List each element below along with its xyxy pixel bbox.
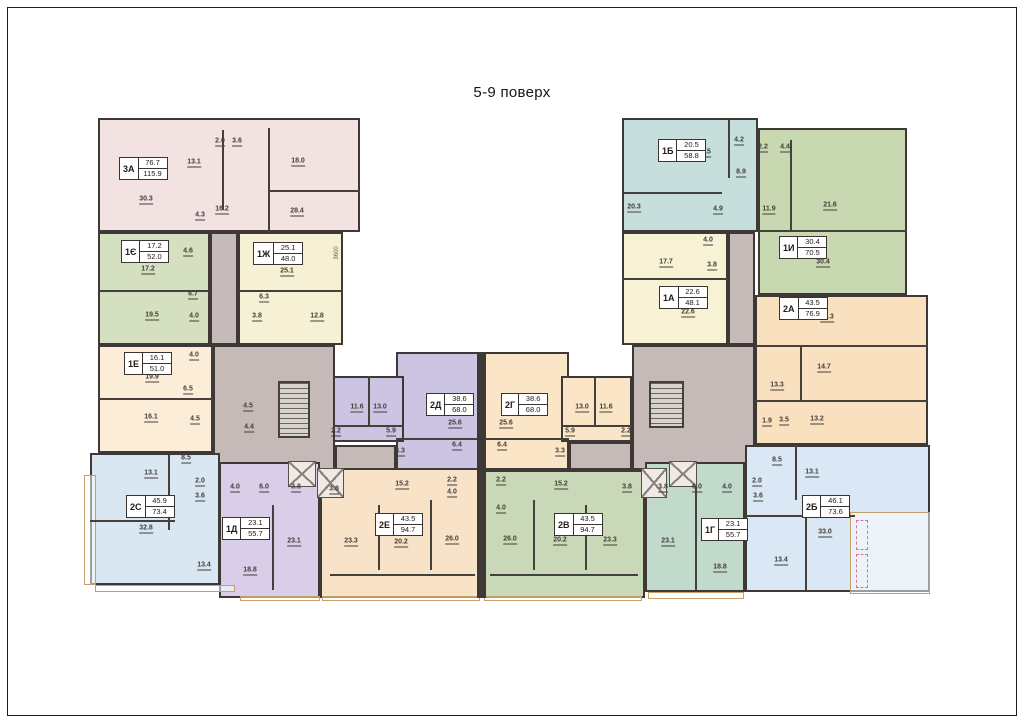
room-area-1b: 4.9: [713, 206, 723, 215]
unit-living-area: 43.5: [394, 514, 422, 525]
partition-wall: [98, 398, 213, 400]
room-area-1a: 22.6: [681, 309, 695, 318]
unit-living-area: 22.6: [679, 287, 707, 298]
unit-living-area: 43.5: [799, 298, 827, 309]
unit-code: 1Є: [122, 241, 140, 262]
unit-total-area: 55.7: [241, 529, 269, 539]
room-area-1b: 8.9: [736, 169, 746, 178]
room-area-2b: 3.6: [753, 493, 763, 502]
room-area-1d: 18.8: [243, 567, 257, 576]
unit-areas: 17.252.0: [140, 241, 168, 262]
unit-code: 1А: [660, 287, 679, 308]
unit-areas: 76.7115.9: [139, 158, 167, 179]
partition-wall: [330, 574, 475, 576]
room-area-1e: 16.1: [144, 414, 158, 423]
room-area-1ye: 4.0: [189, 313, 199, 322]
room-area-1a: 17.7: [659, 259, 673, 268]
corridor-area: [728, 232, 755, 345]
unit-label-2a: 2А43.576.9: [779, 297, 828, 320]
partition-wall: [795, 445, 797, 500]
unit-areas: 22.648.1: [679, 287, 707, 308]
staircase: [649, 381, 684, 428]
floor-plan: 5-9 поверх 4.54.43А76.7115.930.313.12.03…: [0, 0, 1024, 723]
unit-code: 1Д: [223, 518, 241, 539]
room-area-2v: 23.3: [603, 537, 617, 546]
partition-wall: [695, 480, 697, 590]
unit-label-1d: 1Д23.155.7: [222, 517, 270, 540]
room-area-2s: 3.6: [195, 493, 205, 502]
partition-wall: [168, 455, 170, 530]
partition-wall: [268, 190, 360, 192]
room-area-3a: 13.1: [187, 159, 201, 168]
unit-code: 2Г: [502, 394, 519, 415]
partition-wall: [268, 128, 270, 232]
room-area-1d: 3.8: [291, 484, 301, 493]
room-area-2g: 25.6: [499, 420, 513, 429]
partition-wall: [758, 230, 907, 232]
partition-wall: [800, 347, 802, 400]
balcony: [322, 596, 480, 601]
unit-label-2d: 2Д38.668.0: [426, 393, 474, 416]
partition-wall: [790, 140, 792, 230]
partition-wall: [755, 345, 928, 347]
unit-label-1g: 1Г23.155.7: [701, 518, 748, 541]
partition-wall: [396, 438, 482, 440]
room-area-1g: 6.0: [692, 484, 702, 493]
unit-living-area: 76.7: [139, 158, 167, 169]
unit-living-area: 38.6: [519, 394, 547, 405]
unit-living-area: 46.1: [821, 496, 849, 507]
unit-areas: 23.155.7: [719, 519, 747, 540]
unit-total-area: 76.9: [799, 309, 827, 319]
unit-label-1b: 1Б20.558.8: [658, 139, 706, 162]
room-area-1a: 4.0: [703, 237, 713, 246]
partition-wall: [238, 290, 343, 292]
corridor-room-area: 4.4: [244, 424, 254, 433]
unit-areas: 38.668.0: [445, 394, 473, 415]
room-area-3a: 28.4: [290, 208, 304, 217]
partition-wall: [90, 520, 175, 522]
unit-code: 2С: [127, 496, 146, 517]
room-area-2g: 3.3: [555, 448, 565, 457]
room-area-1e: 6.5: [183, 386, 193, 395]
room-area-3a: 2.0: [215, 138, 225, 147]
room-area-1g: 23.1: [661, 538, 675, 547]
expansion-joint-wall: [477, 352, 486, 598]
balcony-dashed-marking: [856, 554, 868, 588]
unit-code: 1Б: [659, 140, 677, 161]
room-area-2v: 3.8: [622, 484, 632, 493]
partition-wall: [728, 120, 730, 178]
room-area-2s: 13.1: [144, 470, 158, 479]
balcony-dashed-marking: [856, 520, 868, 550]
room-area-2b: 2.0: [752, 478, 762, 487]
room-area-1d: 6.0: [259, 484, 269, 493]
unit-label-2v: 2В43.594.7: [554, 513, 603, 536]
corridor-room-area: 4.5: [243, 403, 253, 412]
room-area-2e: 23.3: [344, 538, 358, 547]
room-area-2a: 3.5: [779, 417, 789, 426]
unit-code: 2Б: [803, 496, 821, 517]
corridor-area: [213, 345, 335, 470]
room-area-1ye: 17.2: [141, 266, 155, 275]
unit-areas: 46.173.6: [821, 496, 849, 517]
unit-code: 2В: [555, 514, 574, 535]
unit-living-area: 38.6: [445, 394, 473, 405]
corridor-area: [210, 232, 238, 345]
unit-label-1e: 1Е16.151.0: [124, 352, 172, 375]
floor-title: 5-9 поверх: [0, 84, 1024, 101]
room-area-2e: 26.0: [445, 536, 459, 545]
apartment-1i-area: [758, 128, 907, 295]
unit-total-area: 58.8: [677, 151, 705, 161]
room-area-2d: 25.6: [448, 420, 462, 429]
balcony: [648, 592, 744, 599]
room-area-3a: 18.0: [291, 158, 305, 167]
unit-label-1i: 1И30.470.5: [779, 236, 827, 259]
room-area-3a: 16.2: [215, 206, 229, 215]
corridor-area: [569, 442, 632, 470]
room-area-2a: 1.9: [762, 418, 772, 427]
room-area-2v: 26.0: [503, 536, 517, 545]
unit-areas: 43.594.7: [394, 514, 422, 535]
staircase: [278, 381, 310, 438]
unit-total-area: 48.1: [679, 298, 707, 308]
unit-total-area: 94.7: [574, 525, 602, 535]
room-area-2a: 13.2: [810, 416, 824, 425]
unit-code: 1Е: [125, 353, 143, 374]
unit-areas: 16.151.0: [143, 353, 171, 374]
balcony: [95, 585, 235, 592]
room-area-2b: 33.0: [818, 529, 832, 538]
partition-wall: [368, 376, 370, 426]
partition-wall: [483, 438, 569, 440]
room-area-2b: 13.1: [805, 469, 819, 478]
unit-label-2g: 2Г38.668.0: [501, 393, 548, 416]
unit-areas: 20.558.8: [677, 140, 705, 161]
unit-total-area: 52.0: [140, 252, 168, 262]
unit-total-area: 55.7: [719, 530, 747, 540]
unit-code: 2Д: [427, 394, 445, 415]
unit-code: 3А: [120, 158, 139, 179]
unit-total-area: 51.0: [143, 364, 171, 374]
unit-living-area: 16.1: [143, 353, 171, 364]
room-area-3a: 4.3: [195, 212, 205, 221]
room-area-1g: 4.0: [722, 484, 732, 493]
partition-wall: [533, 500, 535, 570]
room-area-1zh: 6.3: [259, 294, 269, 303]
unit-total-area: 48.0: [274, 254, 302, 264]
unit-label-1a: 1А22.648.1: [659, 286, 708, 309]
room-area-1b: 4.2: [734, 137, 744, 146]
room-area-1i: 4.4: [780, 144, 790, 153]
unit-total-area: 68.0: [445, 405, 473, 415]
unit-areas: 23.155.7: [241, 518, 269, 539]
room-area-2g: 6.4: [497, 442, 507, 451]
room-area-2g: 11.6: [599, 404, 612, 413]
room-area-2d: 6.4: [452, 442, 462, 451]
unit-code: 2А: [780, 298, 799, 319]
room-area-3a: 3.6: [232, 138, 242, 147]
unit-total-area: 73.4: [146, 507, 174, 517]
room-area-2s: 8.5: [181, 455, 191, 464]
partition-wall: [490, 574, 638, 576]
partition-wall: [624, 192, 722, 194]
unit-living-area: 45.9: [146, 496, 174, 507]
balcony: [240, 596, 320, 601]
unit-label-2e: 2Е43.594.7: [375, 513, 423, 536]
room-area-2d: 11.6: [350, 404, 363, 413]
room-area-1i: 30.4: [816, 259, 830, 268]
room-area-1zh: 3.8: [252, 313, 262, 322]
unit-total-area: 70.5: [798, 248, 826, 258]
room-area-1b: 20.3: [627, 204, 641, 213]
room-area-2s: 13.4: [197, 562, 211, 571]
room-area-1d: 4.0: [230, 484, 240, 493]
dimension-3600: 3600: [334, 246, 340, 259]
room-area-2g: 2.2: [621, 428, 631, 437]
unit-total-area: 68.0: [519, 405, 547, 415]
room-area-2e: 4.0: [447, 489, 457, 498]
room-area-1i: 21.6: [823, 202, 837, 211]
room-area-2v: 4.0: [496, 505, 506, 514]
corridor-area: [335, 445, 396, 470]
room-area-2v: 20.2: [553, 537, 567, 546]
unit-areas: 43.594.7: [574, 514, 602, 535]
room-area-2d: 13.0: [373, 404, 387, 413]
unit-living-area: 30.4: [798, 237, 826, 248]
room-area-1ye: 4.6: [183, 248, 193, 257]
room-area-2s: 32.8: [139, 525, 153, 534]
unit-living-area: 43.5: [574, 514, 602, 525]
unit-code: 2Е: [376, 514, 394, 535]
room-area-2g: 5.9: [565, 428, 575, 437]
partition-wall: [272, 505, 274, 590]
partition-wall: [755, 400, 928, 402]
room-area-2a: 14.7: [817, 364, 831, 373]
unit-code: 1И: [780, 237, 798, 258]
unit-label-3a: 3А76.7115.9: [119, 157, 168, 180]
room-area-2e: 20.2: [394, 539, 408, 548]
partition-wall: [805, 517, 807, 590]
room-area-1g: 18.8: [713, 564, 727, 573]
room-area-1i: 2.2: [758, 144, 768, 153]
unit-areas: 45.973.4: [146, 496, 174, 517]
unit-code: 1Г: [702, 519, 719, 540]
unit-label-1zh: 1Ж25.148.0: [253, 242, 303, 265]
room-area-1ye: 6.7: [188, 291, 198, 300]
unit-total-area: 94.7: [394, 525, 422, 535]
room-area-1g: 3.8: [658, 484, 668, 493]
unit-living-area: 20.5: [677, 140, 705, 151]
unit-code: 1Ж: [254, 243, 274, 264]
room-area-2d: 3.3: [395, 448, 405, 457]
unit-areas: 30.470.5: [798, 237, 826, 258]
unit-living-area: 23.1: [719, 519, 747, 530]
balcony: [484, 596, 642, 601]
room-area-1e: 4.0: [189, 352, 199, 361]
partition-wall: [622, 278, 728, 280]
room-area-3a: 30.3: [139, 196, 153, 205]
room-area-2d: 2.2: [331, 428, 341, 437]
unit-living-area: 17.2: [140, 241, 168, 252]
unit-living-area: 23.1: [241, 518, 269, 529]
room-area-2e: 2.2: [447, 477, 457, 486]
balcony: [84, 475, 96, 585]
room-area-2g: 13.0: [575, 404, 589, 413]
unit-areas: 38.668.0: [519, 394, 547, 415]
unit-label-1ye: 1Є17.252.0: [121, 240, 169, 263]
room-area-2a: 13.3: [770, 382, 784, 391]
room-area-1ye: 19.5: [145, 312, 159, 321]
unit-label-2s: 2С45.973.4: [126, 495, 175, 518]
room-area-1d: 23.1: [287, 538, 301, 547]
unit-label-2b: 2Б46.173.6: [802, 495, 850, 518]
room-area-2d: 5.9: [386, 428, 396, 437]
room-area-2v: 2.2: [496, 477, 506, 486]
room-area-1zh: 12.8: [310, 313, 324, 322]
room-area-1e: 4.5: [190, 416, 200, 425]
unit-total-area: 73.6: [821, 507, 849, 517]
unit-living-area: 25.1: [274, 243, 302, 254]
unit-total-area: 115.9: [139, 169, 167, 179]
room-area-2e: 3.8: [329, 486, 339, 495]
unit-areas: 25.148.0: [274, 243, 302, 264]
partition-wall: [430, 500, 432, 570]
room-area-1a: 3.8: [707, 262, 717, 271]
partition-wall: [594, 376, 596, 426]
room-area-1i: 11.9: [762, 206, 775, 215]
room-area-2b: 13.4: [774, 557, 788, 566]
room-area-2b: 8.5: [772, 457, 782, 466]
unit-areas: 43.576.9: [799, 298, 827, 319]
room-area-1zh: 25.1: [280, 268, 294, 277]
room-area-2e: 15.2: [395, 481, 409, 490]
room-area-2v: 15.2: [554, 481, 568, 490]
room-area-2s: 2.0: [195, 478, 205, 487]
